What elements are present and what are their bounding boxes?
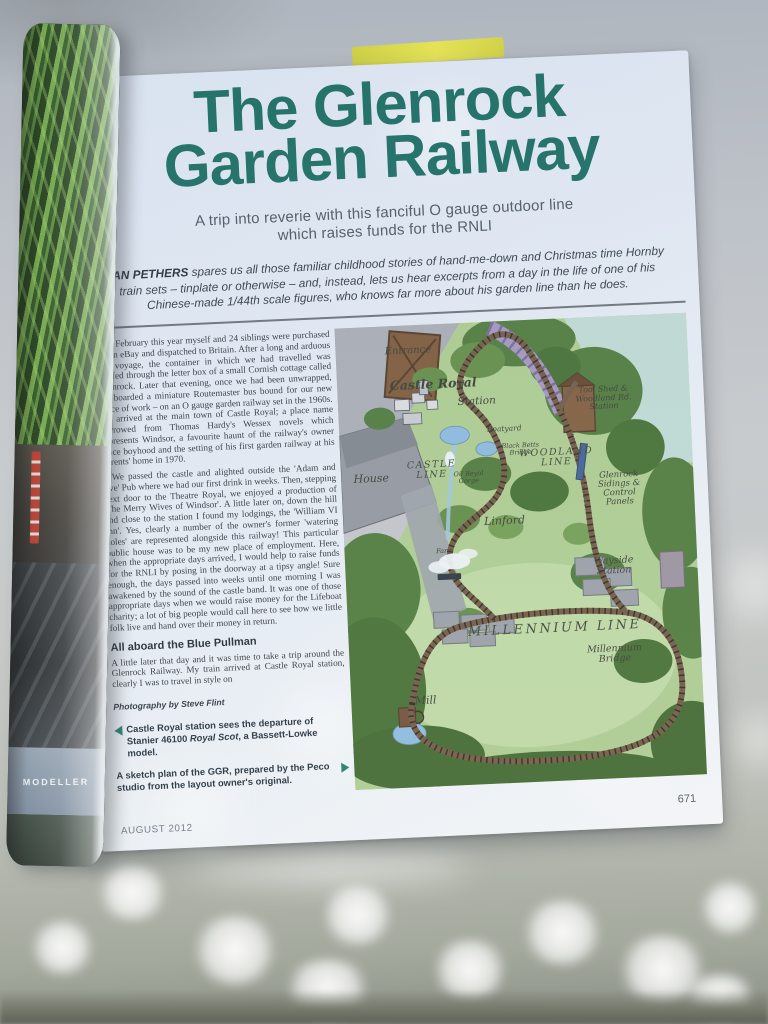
body-paragraph: We passed the castle and alighted outsid… [103,462,343,634]
map-label-tool-shed-station: Tool Shed & Woodland Rd. Station [566,384,641,413]
caption-1-loco-name: Royal Scot [190,730,239,743]
intro-text: spares us all those familiar childhood s… [119,244,664,313]
map-label-glenrock-sidings: Glenrock Sidings & Control Panels [588,469,652,507]
body-paragraph: In February this year myself and 24 sibl… [97,329,336,469]
map-label-millennium-bridge: Millennium Bridge [581,643,648,666]
author-name: IAN PETHERS [109,265,189,283]
map-label-mill: Mill [414,694,436,707]
caption-arrow-left-icon [114,726,122,736]
page-number: 671 [677,793,696,806]
map-label-entrance: Entrance [385,345,432,358]
paragraph-2-text: We passed the castle and alighted outsid… [103,462,342,633]
map-millennium-bridge [660,551,685,588]
rolled-magazine-highlight [6,23,121,867]
caption-arrow-right-icon [341,762,349,772]
map-label-linford: Linford [484,514,525,527]
magazine-page: The Glenrock Garden Railway A trip into … [67,50,723,851]
photo-credit: Photography by Steve Flint [113,691,346,712]
photo-caption-1: Castle Royal station sees the departure … [114,713,348,760]
body-column: In February this year myself and 24 sibl… [97,329,350,794]
map-label-woodland-line: WOODLAND LINE [516,446,597,470]
paragraph-3-text: A little later that day and it was time … [111,647,345,689]
map-label-house: House [353,472,389,485]
rolled-magazine: MODELLER [6,23,121,867]
map-label-station: Station [457,395,496,408]
paragraph-1-text: n February this year myself and 24 sibli… [98,329,335,468]
article-title: The Glenrock Garden Railway [67,64,693,198]
map-label-farm: Farm [436,548,454,556]
map-label-boatyard: Boatyard [487,424,522,433]
map-label-gorge: Oil Beyol Gorge [448,470,489,485]
body-paragraph: A little later that day and it was time … [111,647,345,690]
issue-date: AUGUST 2012 [121,823,193,837]
layout-map: Entrance Castle Royal Station Boatyard B… [334,313,707,790]
table-edge-shadow [0,990,768,1024]
caption-2-text: A sketch plan of the GGR, prepared by th… [116,760,330,793]
map-label-wayside-station: Wayside Station [584,555,643,578]
photo-caption-2: A sketch plan of the GGR, prepared by th… [116,759,350,794]
